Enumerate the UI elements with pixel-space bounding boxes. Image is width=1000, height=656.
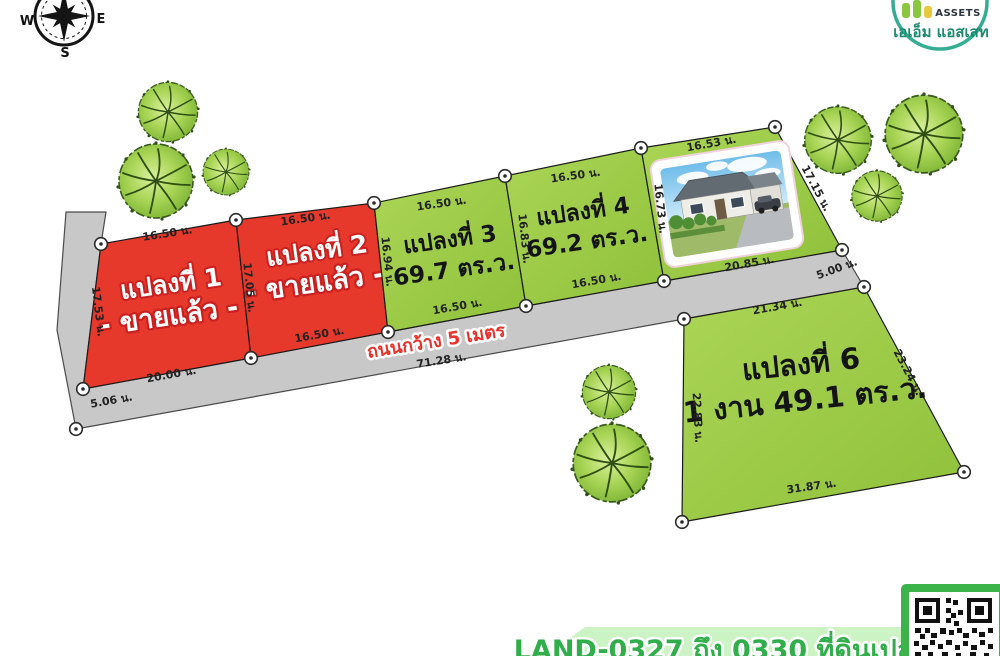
- vertex-marker: [77, 383, 90, 396]
- vertex-marker: [958, 466, 971, 479]
- land-plot-plan: แปลงที่ 1 - ขายแล้ว - แปลงที่ 2 - ขายแล้…: [0, 0, 1000, 656]
- logo-name-th: เอเอ็ม แอสเสท: [893, 22, 988, 41]
- vertex-marker: [635, 142, 648, 155]
- tree-icon: [116, 141, 195, 220]
- house-photo: [649, 140, 804, 269]
- vertex-marker: [769, 121, 782, 134]
- tree-icon: [802, 104, 873, 175]
- tree-icon: [201, 147, 250, 196]
- vertex-marker: [836, 244, 849, 257]
- vertex-marker: [658, 275, 671, 288]
- dim-label: 22.83 น.: [690, 392, 706, 443]
- vertex-marker: [70, 423, 83, 436]
- compass-west-label: W: [20, 14, 34, 29]
- vertex-marker: [676, 516, 689, 529]
- vertex-marker: [245, 352, 258, 365]
- compass-south-label: S: [60, 46, 69, 61]
- vertex-marker: [520, 300, 533, 313]
- vertex-marker: [230, 214, 243, 227]
- vertex-marker: [368, 197, 381, 210]
- qr-code-icon: [901, 584, 1000, 656]
- vertex-marker: [858, 281, 871, 294]
- tree-icon: [850, 169, 904, 223]
- vertex-marker: [678, 313, 691, 326]
- tree-icon: [136, 80, 199, 143]
- vertex-marker: [499, 170, 512, 183]
- logo-am-assets: ASSETS เอเอ็ม แอสเสท: [893, 0, 989, 49]
- vertex-marker: [382, 326, 395, 339]
- compass-east-label: E: [97, 12, 106, 27]
- logo-name-en: ASSETS: [935, 8, 981, 19]
- tree-icon: [882, 92, 965, 175]
- tree-icon: [570, 421, 653, 504]
- vertex-marker: [95, 238, 108, 251]
- tree-icon: [580, 363, 637, 420]
- compass-rose-icon: W E S: [20, 0, 106, 61]
